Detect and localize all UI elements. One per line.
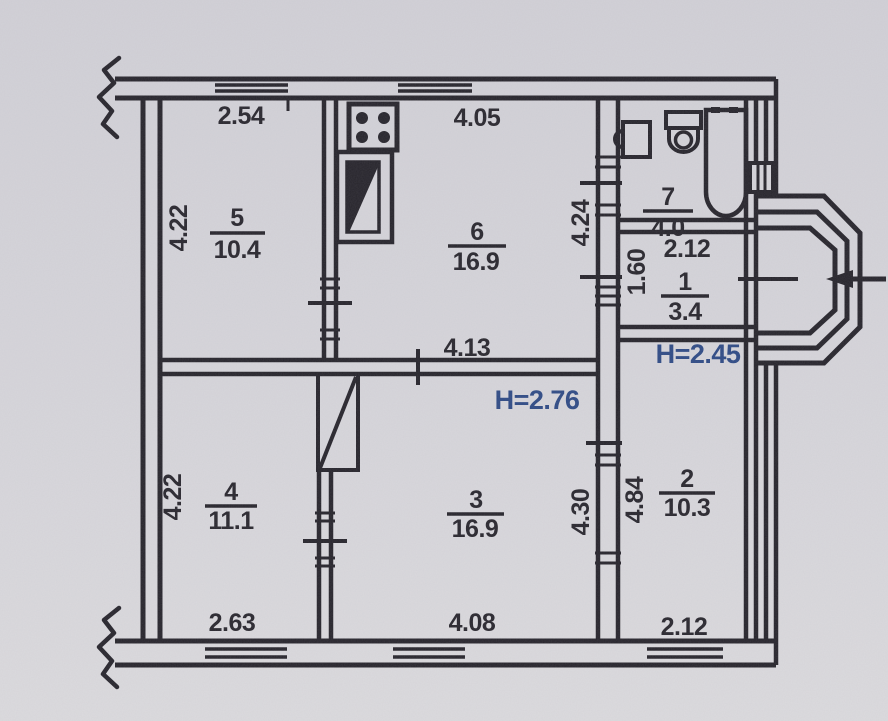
- paper-grain-overlay: [0, 0, 888, 721]
- floor-plan-scan: 2.54 4.05 4.22 4.24 4.13 2.12 1.60 4.22 …: [0, 0, 888, 721]
- floor-plan: 2.54 4.05 4.22 4.24 4.13 2.12 1.60 4.22 …: [0, 0, 888, 721]
